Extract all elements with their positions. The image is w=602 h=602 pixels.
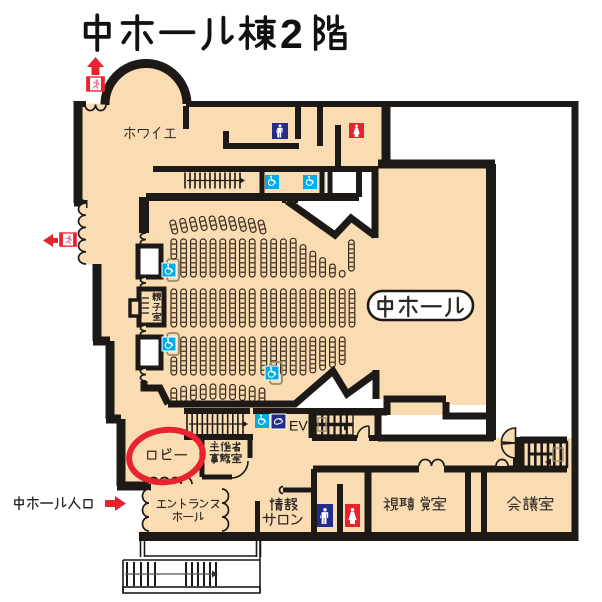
svg-text:2: 2 — [280, 11, 303, 57]
svg-text:EV: EV — [289, 418, 308, 434]
